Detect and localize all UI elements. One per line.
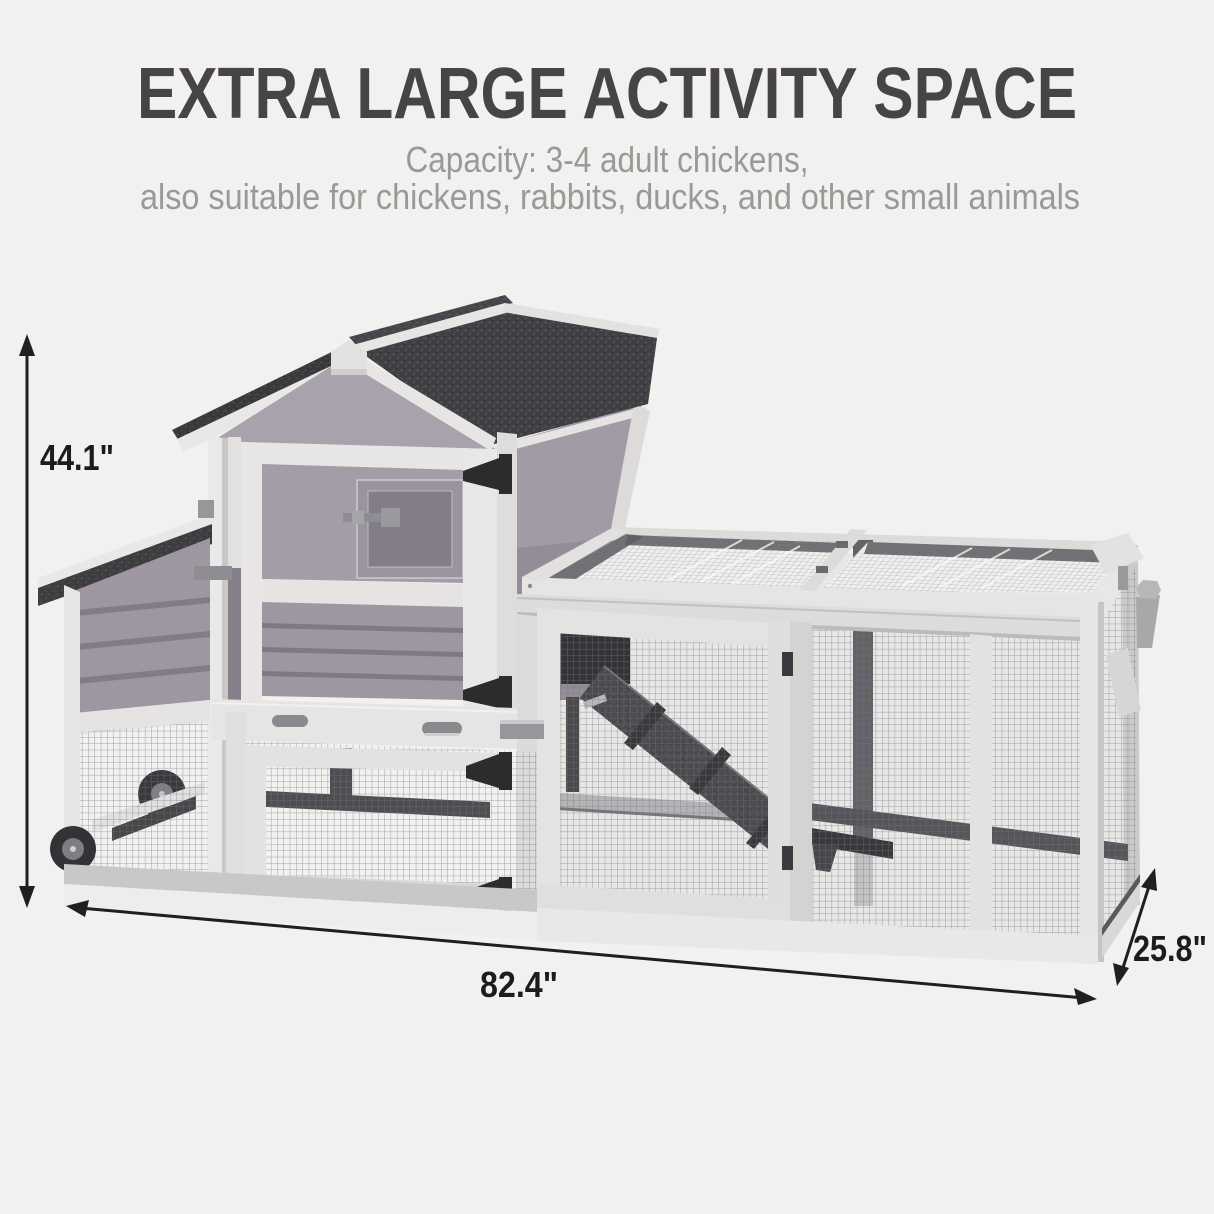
svg-text:also suitable for chickens, ra: also suitable for chickens, rabbits, duc…: [140, 176, 1080, 217]
svg-text:25.8": 25.8": [1133, 928, 1207, 969]
svg-text:EXTRA LARGE ACTIVITY SPACE: EXTRA LARGE ACTIVITY SPACE: [137, 54, 1077, 134]
svg-text:Capacity: 3-4 adult chickens,: Capacity: 3-4 adult chickens,: [406, 139, 809, 180]
svg-text:44.1": 44.1": [40, 437, 114, 478]
svg-text:82.4": 82.4": [480, 964, 558, 1005]
